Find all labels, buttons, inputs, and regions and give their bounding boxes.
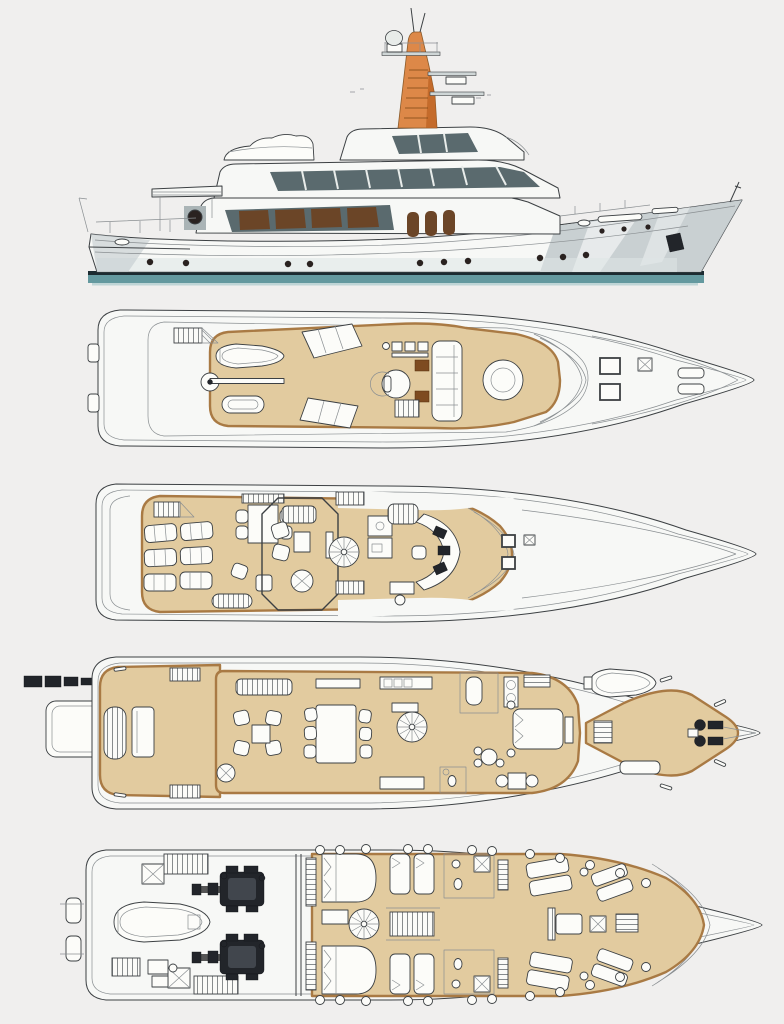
skylight-dome [483,360,523,400]
side-stairs-port [336,492,364,505]
sun-deck-sofa [432,341,462,421]
vip-bed [322,946,376,994]
mast-base-starboard [600,384,620,400]
stores-rack [164,854,208,874]
stern-step-port [88,344,99,362]
bridge-sofa [388,504,418,524]
crew-stairs [616,914,638,932]
spiral-staircase [349,909,379,939]
sun-deck-plan [88,310,754,448]
main-deck-plan [24,657,760,809]
aft-table [132,707,154,757]
breakfast-table [481,749,497,765]
bed-bench [565,717,573,743]
radar-mast [350,8,491,128]
companionway-stairs [390,912,434,936]
dresser [322,910,348,924]
side-table [256,575,272,591]
yacht-general-arrangement [0,0,784,1024]
side-stairs-starboard [336,581,364,594]
ga-drawing [0,0,784,1024]
bow-seat [620,761,660,774]
profile-elevation [79,8,742,286]
crew-bench [548,908,555,940]
bathtub [466,677,482,705]
deck-hatch [638,358,652,371]
vanity-table [508,773,526,789]
salon-sofa [236,679,292,695]
wardrobe [306,858,316,906]
aft-bench [212,594,252,608]
wardrobe [524,675,550,687]
foredeck-stairs [594,721,612,743]
main-deck-tall-windows [407,210,455,237]
vip-bed [322,854,376,902]
radar-dome [386,31,403,46]
boat-deck-tender [224,134,314,160]
spiral-staircase [397,712,427,742]
wing-locker-port [502,535,515,547]
wardrobe [306,942,316,990]
skylounge-sofa [282,506,316,523]
upper-deck-plan [96,484,756,622]
sideboard [316,679,360,688]
pilothouse [340,127,529,160]
owner-bed [513,709,563,749]
dining-table [316,705,356,763]
hatch-box [590,916,606,932]
mast-base-port [600,358,620,374]
coffee-table [252,725,270,743]
spiral-staircase [329,537,359,567]
swim-platform-profile [60,898,84,961]
chart-desk [390,582,414,594]
deck-hatch [524,535,535,545]
side-table-port [415,360,429,371]
crew-mess-table [556,914,582,934]
stairs-up-port [170,668,200,681]
engine-room-stairs [112,958,140,976]
chart-chair [395,595,405,605]
rescue-boat [222,396,264,413]
hatch-box [142,864,164,884]
aft-bench [104,707,126,759]
day-head [217,764,235,782]
coffee-table [294,532,310,552]
wing-locker-starboard [502,557,515,569]
helm-chair [412,546,426,559]
stern-step-starboard [88,394,99,412]
foredeck-tender [584,669,656,697]
stairs-up-starboard [170,785,200,798]
stairs-to-bridge [395,400,419,417]
waterline [88,271,704,286]
lower-deck-plan [60,845,762,1006]
main-deck-superstructure [96,194,560,237]
